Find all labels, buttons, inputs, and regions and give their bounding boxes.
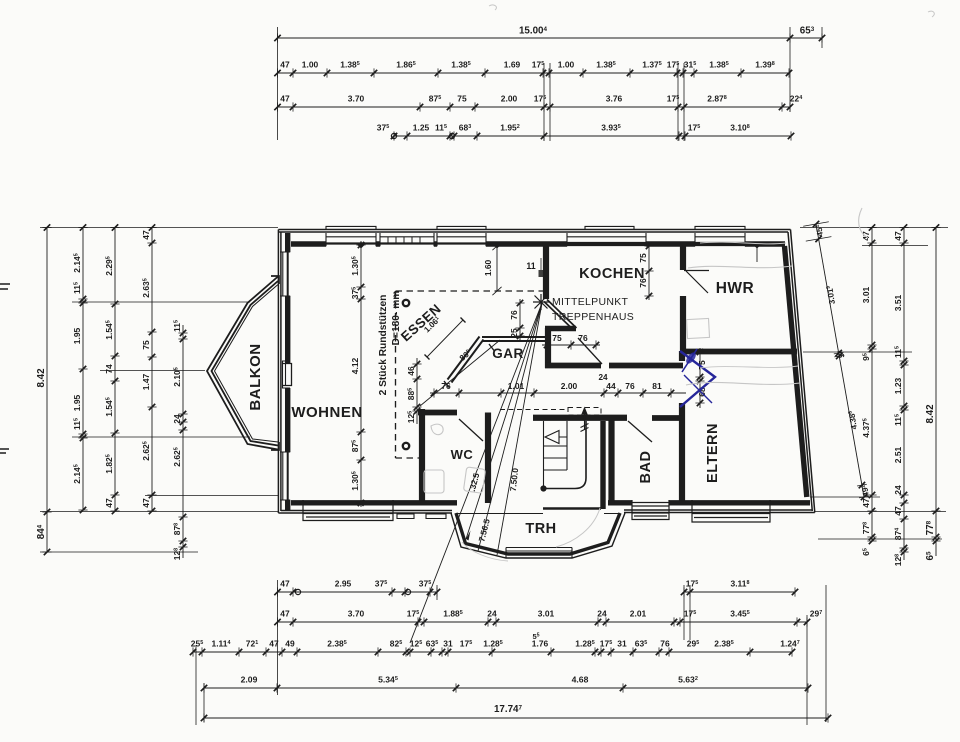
- svg-text:24: 24: [597, 609, 607, 619]
- svg-text:76: 76: [509, 310, 519, 320]
- svg-text:81: 81: [652, 381, 662, 391]
- svg-text:4.68: 4.68: [572, 675, 589, 685]
- svg-text:3.51: 3.51: [893, 294, 903, 311]
- svg-text:1.00: 1.00: [302, 60, 319, 70]
- svg-text:KOCHEN: KOCHEN: [579, 266, 645, 282]
- svg-text:49: 49: [285, 639, 295, 649]
- svg-text:47: 47: [141, 230, 151, 240]
- svg-text:24: 24: [487, 609, 497, 619]
- svg-text:74: 74: [104, 364, 114, 374]
- svg-text:TREPPENHAUS: TREPPENHAUS: [552, 311, 634, 323]
- svg-text:8.42: 8.42: [36, 368, 47, 388]
- svg-text:2.95: 2.95: [335, 579, 352, 589]
- svg-text:17.747: 17.747: [494, 704, 523, 715]
- svg-text:47: 47: [280, 609, 290, 619]
- svg-text:D=180- mm: D=180- mm: [391, 291, 402, 346]
- svg-text:75: 75: [141, 340, 151, 350]
- svg-text:BALKON: BALKON: [247, 343, 264, 410]
- svg-text:47: 47: [861, 498, 871, 508]
- svg-text:75: 75: [457, 94, 467, 104]
- svg-text:1.60: 1.60: [483, 260, 493, 277]
- svg-text:1.95: 1.95: [72, 394, 82, 411]
- svg-text:TRH: TRH: [525, 521, 556, 537]
- svg-text:2.09: 2.09: [241, 675, 258, 685]
- svg-text:2 Stück Rundstützen: 2 Stück Rundstützen: [378, 295, 389, 396]
- svg-text:8.42: 8.42: [925, 404, 936, 424]
- svg-text:47: 47: [104, 498, 114, 508]
- svg-text:75: 75: [638, 253, 648, 263]
- svg-text:1.95: 1.95: [72, 327, 82, 344]
- svg-text:3.70: 3.70: [348, 609, 365, 619]
- svg-text:1.23: 1.23: [893, 377, 903, 394]
- svg-text:75: 75: [552, 333, 562, 343]
- svg-text:1.01: 1.01: [508, 381, 525, 391]
- svg-text:24: 24: [893, 485, 903, 495]
- svg-text:44: 44: [606, 381, 616, 391]
- svg-text:3.70: 3.70: [348, 94, 365, 104]
- svg-text:46: 46: [406, 366, 416, 376]
- svg-text:1.25: 1.25: [413, 123, 430, 133]
- svg-text:25: 25: [509, 328, 519, 338]
- svg-text:3.01: 3.01: [861, 286, 871, 303]
- svg-text:HWR: HWR: [716, 280, 755, 297]
- svg-text:1.47: 1.47: [141, 373, 151, 390]
- svg-text:24: 24: [598, 373, 608, 382]
- svg-text:47: 47: [893, 231, 903, 241]
- svg-text:2.00: 2.00: [501, 94, 518, 104]
- svg-text:76: 76: [578, 333, 588, 343]
- svg-text:76: 76: [660, 639, 670, 649]
- svg-text:1.00: 1.00: [558, 60, 575, 70]
- svg-text:4.12: 4.12: [350, 357, 360, 374]
- svg-text:GAR: GAR: [492, 346, 524, 361]
- svg-text:47: 47: [280, 60, 290, 70]
- svg-text:47: 47: [893, 506, 903, 516]
- svg-text:1.69: 1.69: [504, 60, 521, 70]
- svg-text:31: 31: [617, 639, 627, 649]
- svg-text:2.51: 2.51: [893, 446, 903, 463]
- svg-text:3.01: 3.01: [538, 609, 555, 619]
- svg-text:2.00: 2.00: [561, 381, 578, 391]
- svg-text:3.76: 3.76: [606, 94, 623, 104]
- svg-text:WC: WC: [451, 447, 474, 462]
- svg-text:15.004: 15.004: [519, 26, 548, 37]
- svg-text:76: 76: [441, 381, 451, 391]
- svg-text:31: 31: [443, 639, 453, 649]
- svg-text:24: 24: [172, 414, 182, 424]
- svg-text:47: 47: [280, 579, 290, 589]
- svg-text:BAD: BAD: [638, 451, 654, 484]
- svg-text:ELTERN: ELTERN: [705, 423, 721, 483]
- svg-text:47: 47: [280, 94, 290, 104]
- svg-text:47: 47: [141, 498, 151, 508]
- svg-text:76: 76: [625, 381, 635, 391]
- svg-text:WOHNEN: WOHNEN: [291, 404, 362, 421]
- svg-text:2.01: 2.01: [630, 609, 647, 619]
- svg-text:11: 11: [526, 261, 535, 271]
- svg-text:MITTELPUNKT: MITTELPUNKT: [552, 296, 629, 308]
